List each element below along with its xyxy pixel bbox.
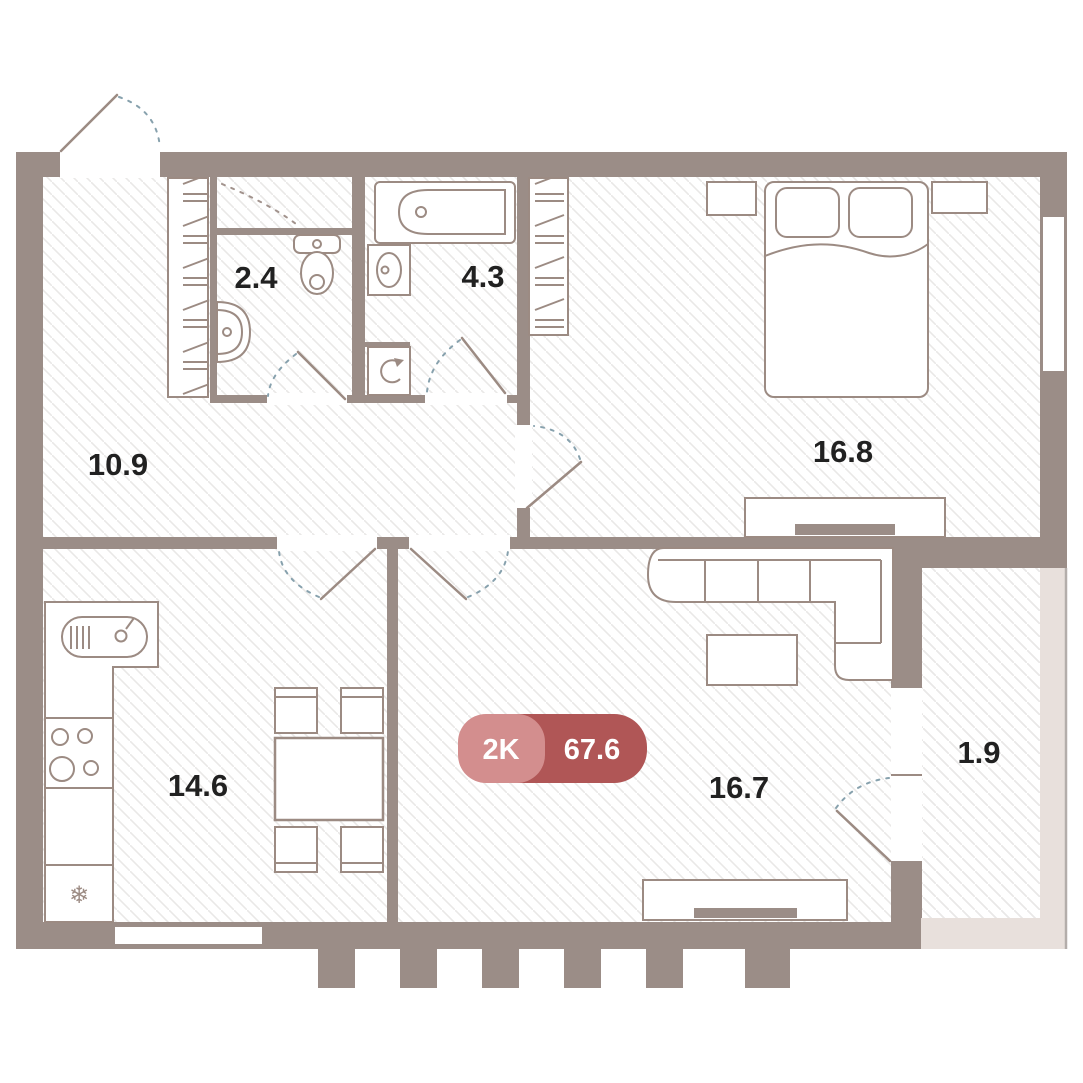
wall-wc-bath xyxy=(352,177,365,403)
bedroom-area-label: 16.8 xyxy=(813,434,873,469)
wc-area-label: 2.4 xyxy=(234,260,278,295)
wall-wc-shaft-divider xyxy=(217,228,352,235)
balcony-window xyxy=(891,688,922,774)
apartment-badge: 2K 67.6 xyxy=(458,714,647,783)
facade-tooth xyxy=(564,949,601,988)
fridge-snowflake-icon: ❄ xyxy=(69,881,89,909)
wall-left xyxy=(16,152,43,949)
hallway-wardrobe xyxy=(168,178,208,397)
bed-pillow-left xyxy=(776,188,839,237)
bedroom-wardrobe-pattern xyxy=(529,178,568,335)
toilet-bowl xyxy=(301,252,333,294)
living-door-opening xyxy=(409,535,510,551)
nightstand-left xyxy=(707,182,756,215)
balcony-wall-right xyxy=(1040,568,1066,949)
balcony-door-opening xyxy=(891,776,922,861)
facade-tooth xyxy=(400,949,437,988)
toilet-tank xyxy=(294,235,340,253)
washing-machine xyxy=(368,347,410,395)
living-area-label: 16.7 xyxy=(709,770,769,805)
wall-top xyxy=(16,152,1067,177)
bathroom-door-opening xyxy=(425,393,507,405)
badge-rooms-label: 2K xyxy=(482,734,519,766)
living-tv xyxy=(694,908,797,918)
entrance-door-swing-arc xyxy=(119,97,160,148)
facade-tooth xyxy=(646,949,683,988)
bedroom-window xyxy=(1043,217,1064,371)
facade-tooth xyxy=(318,949,355,988)
fridge: ❄ xyxy=(45,865,113,922)
chair xyxy=(275,827,317,872)
hallway-wardrobe-pattern xyxy=(168,178,208,397)
kitchen-door-opening xyxy=(277,535,377,551)
chair xyxy=(341,827,383,872)
balcony-area-label: 1.9 xyxy=(957,735,1000,770)
wc-door-opening xyxy=(267,393,347,405)
bedroom-tv xyxy=(795,524,895,535)
entrance-door-leaf xyxy=(61,95,117,151)
wall-wc-left xyxy=(210,177,217,403)
floor-plan: ❄ 10.9 2.4 4.3 16.8 14.6 xyxy=(0,0,1083,1083)
floor-plan-page: ❄ 10.9 2.4 4.3 16.8 14.6 xyxy=(0,0,1083,1083)
washing-machine-body xyxy=(368,347,410,395)
bathroom-area-label: 4.3 xyxy=(461,259,504,294)
bathtub xyxy=(375,182,515,243)
hallway-area-label: 10.9 xyxy=(88,447,148,482)
facade-teeth xyxy=(318,949,790,988)
entrance-opening xyxy=(60,150,160,178)
coffee-table xyxy=(707,635,797,685)
chair xyxy=(275,688,317,733)
bedroom-door-opening xyxy=(515,425,532,508)
facade-tooth xyxy=(745,949,790,988)
dining-table xyxy=(275,738,383,820)
facade-tooth xyxy=(482,949,519,988)
bathroom-sink xyxy=(368,245,410,295)
badge-total-area: 67.6 xyxy=(564,734,620,766)
bedroom-wardrobe xyxy=(529,178,568,335)
bedroom-tv-stand xyxy=(745,498,945,537)
wall-kitchen-living xyxy=(387,537,398,922)
kitchen-window xyxy=(115,927,262,944)
entrance-door xyxy=(61,95,160,151)
bed-pillow-right xyxy=(849,188,912,237)
balcony-wall-bottom xyxy=(921,918,1066,949)
double-bed xyxy=(765,182,928,397)
kitchen-area-label: 14.6 xyxy=(168,768,228,803)
living-tv-stand xyxy=(643,880,847,920)
chair xyxy=(341,688,383,733)
nightstand-right xyxy=(932,182,987,213)
